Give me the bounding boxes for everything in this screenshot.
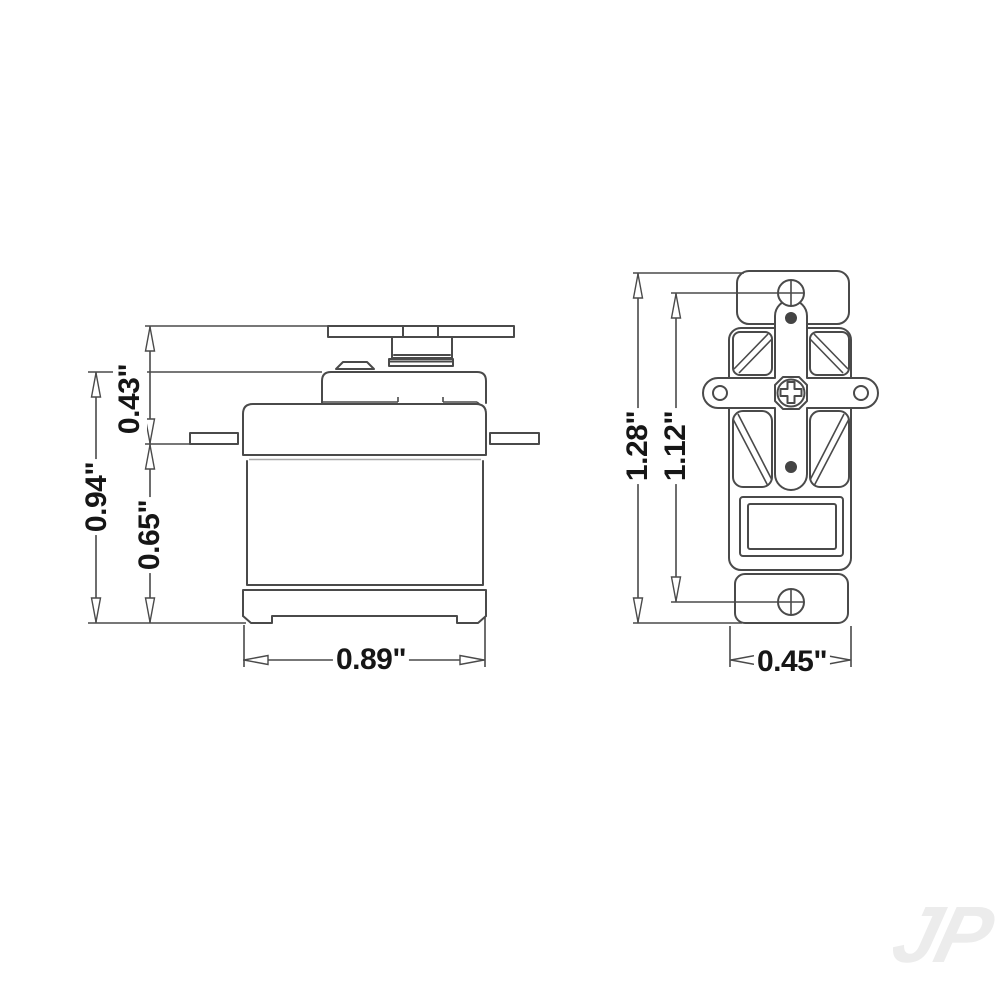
mount-tab-left bbox=[190, 433, 238, 444]
dim-label-horn-to-flange: 0.43" bbox=[113, 361, 147, 437]
dim-label-mount-hole-spacing: 1.12" bbox=[659, 408, 693, 484]
mount-screw-bottom bbox=[778, 589, 804, 615]
servo-dimension-drawing: 0.43" 0.94" 0.65" 0.89" 1.28" 1.12" 0.45… bbox=[0, 0, 1000, 1000]
bottom-feet bbox=[243, 616, 486, 623]
body-upper-band bbox=[243, 404, 486, 455]
top-view bbox=[703, 271, 878, 623]
body-bottom-cap bbox=[243, 590, 486, 616]
case-ridge bbox=[336, 362, 374, 369]
dim-label-overall-length: 1.28" bbox=[621, 408, 655, 484]
mount-screw-top bbox=[778, 280, 804, 306]
horn-hole-bottom bbox=[786, 462, 797, 473]
dim-label-body-width-top: 0.45" bbox=[754, 645, 830, 679]
label-recess-outer bbox=[740, 497, 843, 556]
servo-horn-side bbox=[328, 326, 514, 337]
body-main bbox=[247, 461, 483, 585]
dim-label-overall-height: 0.94" bbox=[80, 459, 114, 535]
output-shaft-screw bbox=[775, 377, 807, 409]
upper-gear-case bbox=[322, 372, 486, 403]
dim-label-flange-to-bottom: 0.65" bbox=[133, 497, 167, 573]
horn-hole-top bbox=[786, 313, 797, 324]
mount-tab-right bbox=[490, 433, 539, 444]
dim-label-body-width-side: 0.89" bbox=[333, 643, 409, 677]
side-view bbox=[190, 326, 539, 623]
